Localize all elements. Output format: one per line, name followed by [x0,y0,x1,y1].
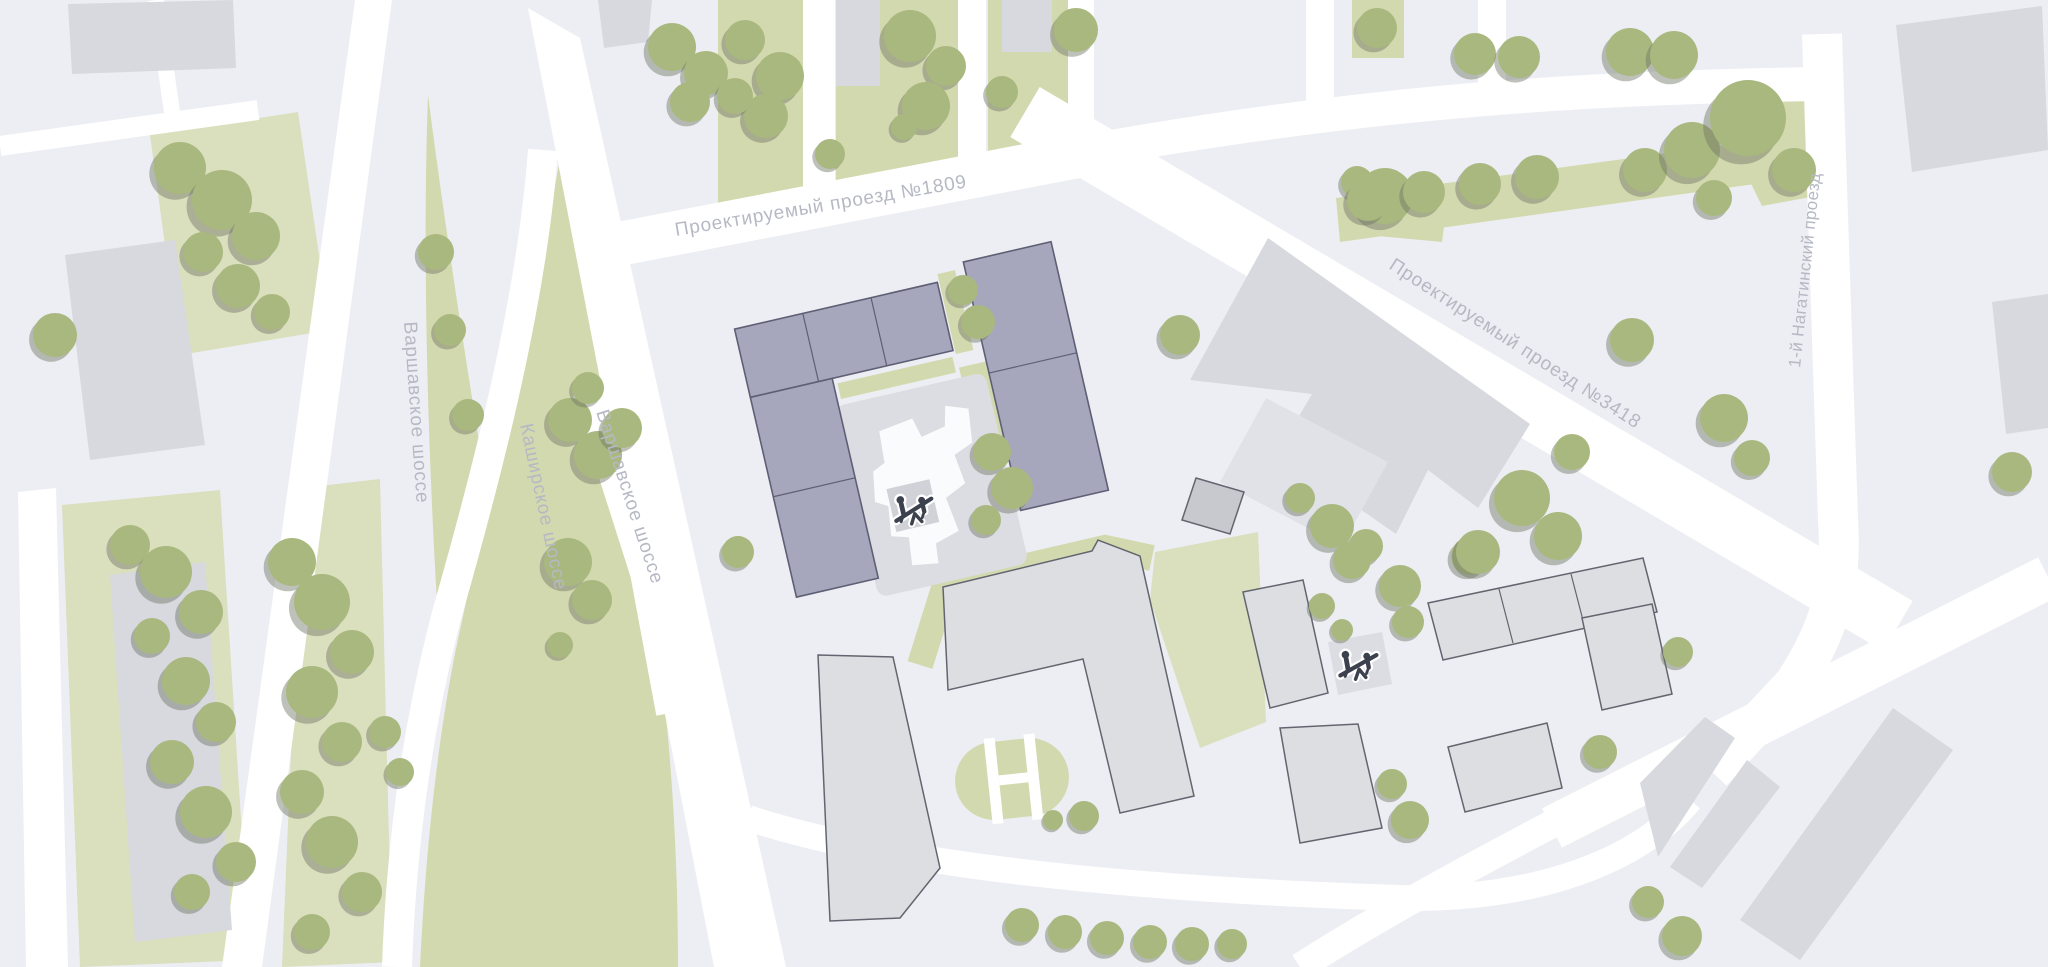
building [598,0,652,48]
site-plan-svg: Проектируемый проезд №1809 Варшавское шо… [0,0,2048,967]
site-plan-map: Проектируемый проезд №1809 Варшавское шо… [0,0,2048,967]
road-local-north [958,0,986,178]
building [68,0,236,74]
building [836,0,880,86]
building [1002,0,1052,52]
road-local-north [1306,0,1334,102]
road-local-north [803,0,835,208]
building [1896,6,2048,172]
